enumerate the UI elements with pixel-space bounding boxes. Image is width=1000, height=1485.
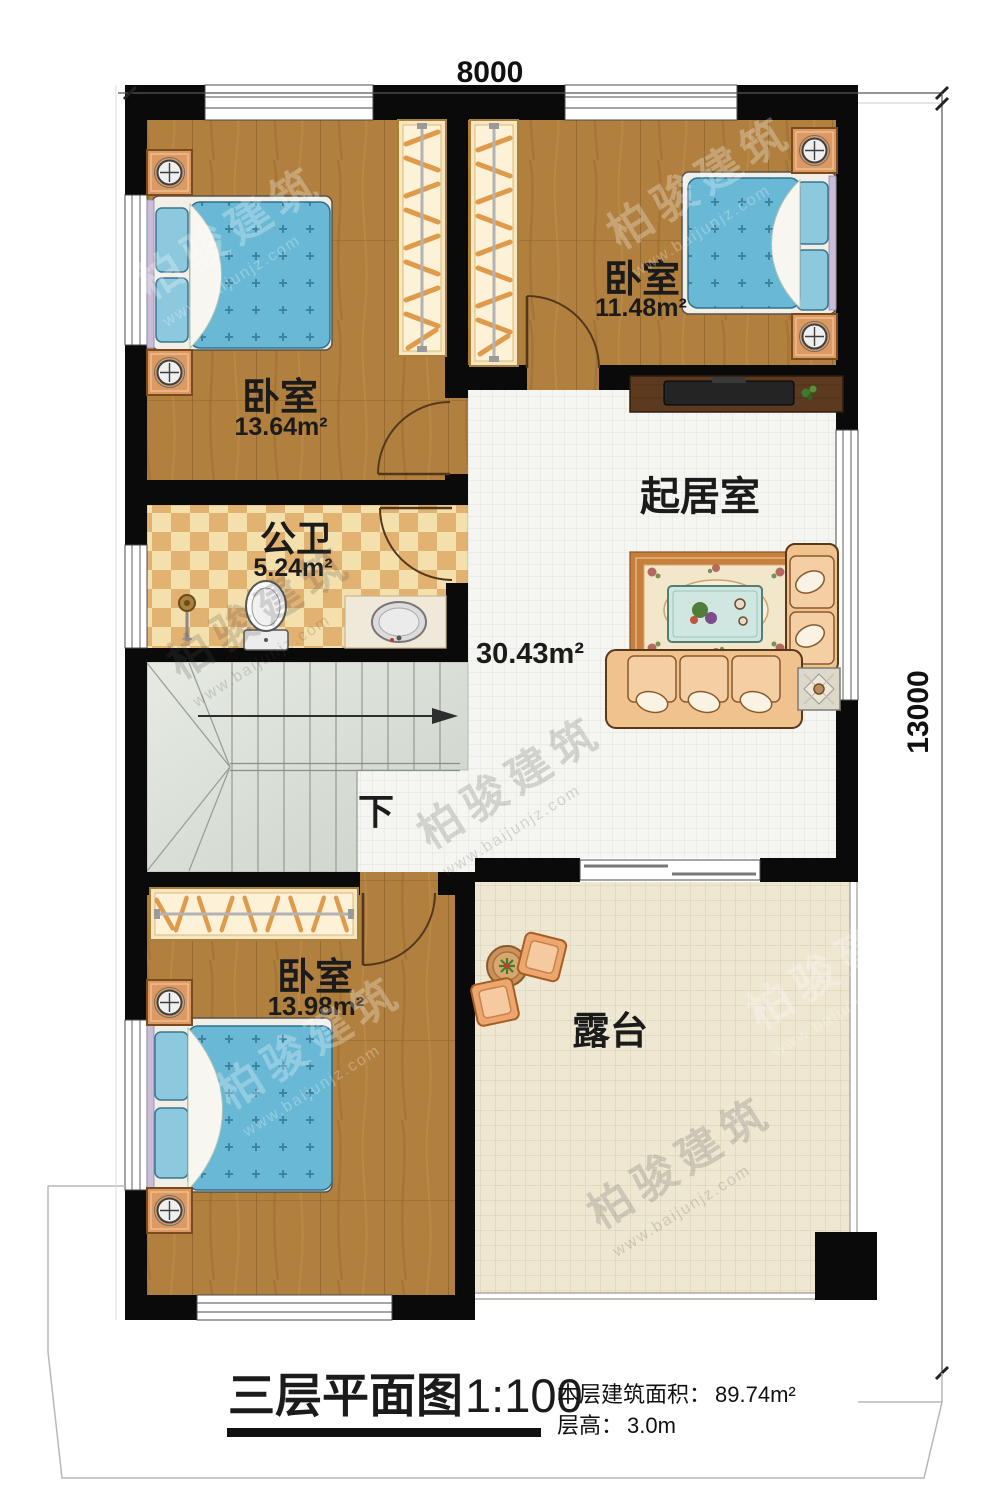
- label-living-room: 起居室: [640, 475, 760, 519]
- wardrobe-top-right: [470, 120, 518, 366]
- coffee-table: [668, 586, 762, 642]
- label-stairs-down: 下: [358, 791, 394, 832]
- label-terrace: 露台: [572, 1011, 648, 1053]
- label-living-room-area: 30.43m²: [476, 638, 584, 670]
- svg-text:13000: 13000: [902, 670, 935, 753]
- sofa-bottom: [606, 650, 802, 728]
- window-top-right: [565, 85, 737, 120]
- sink: [345, 596, 446, 648]
- label-bedroom-top-left-area: 13.64m²: [234, 413, 327, 441]
- nightstand: [147, 1188, 192, 1233]
- window-right-living: [836, 430, 858, 700]
- corner-side-table: [798, 668, 840, 710]
- title-underline: [227, 1428, 541, 1437]
- tv-cabinet: [630, 376, 843, 412]
- window-top-left: [205, 85, 373, 120]
- plan-title: 三层平面图1:100: [228, 1369, 583, 1422]
- nightstand: [147, 150, 192, 195]
- tv: [664, 381, 794, 405]
- window-left-bedroom-bottom: [125, 1020, 147, 1190]
- nightstand: [147, 980, 192, 1025]
- svg-text:8000: 8000: [457, 56, 524, 89]
- wardrobe-top-left: [398, 120, 446, 356]
- nightstand: [792, 128, 837, 173]
- terrace-column: [815, 1232, 877, 1300]
- floor-area-text: 本层建筑面积：89.74m²: [557, 1382, 796, 1407]
- floor-plan-page: 卧室 13.64m² 卧室 11.48m² 公卫 5.24m² 起居室 30.4…: [0, 0, 1000, 1485]
- terrace-chair: [470, 977, 520, 1027]
- terrace-chair: [517, 932, 568, 983]
- window-left-bathroom: [125, 545, 147, 648]
- wardrobe-bottom: [150, 888, 358, 940]
- floor-height-text: 层高：3.0m: [557, 1413, 676, 1438]
- floor-plan-svg: 卧室 13.64m² 卧室 11.48m² 公卫 5.24m² 起居室 30.4…: [0, 0, 1000, 1485]
- window-bottom-bedroom: [197, 1295, 392, 1320]
- nightstand: [147, 350, 192, 395]
- window-living-terrace-slider: [580, 860, 760, 880]
- nightstand: [792, 314, 837, 359]
- label-bedroom-top-right-area: 11.48m²: [595, 294, 687, 322]
